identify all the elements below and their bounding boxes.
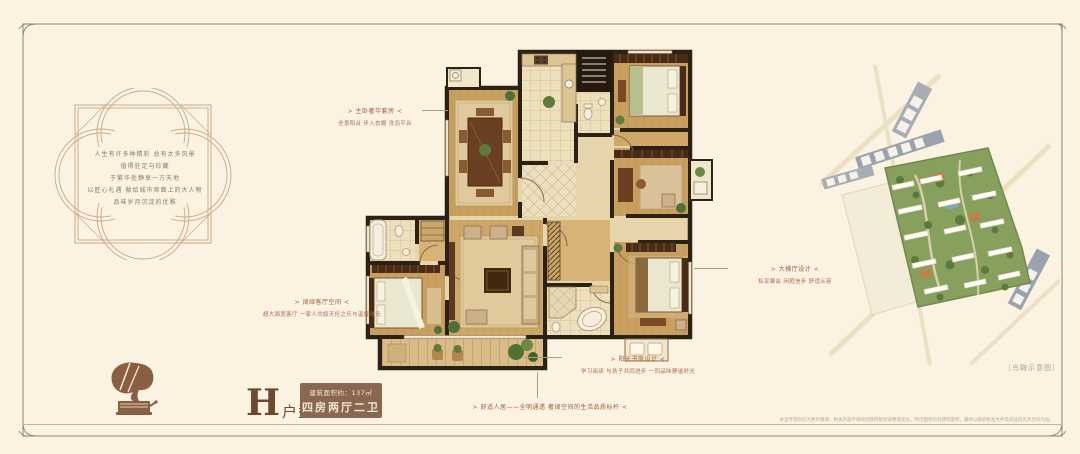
leader-line-vertical xyxy=(537,372,538,398)
callout-master-suite: ≻ 主卧奢华套房 ≺ 全景阳台 步入衣帽 洗浴平台 xyxy=(328,106,422,127)
callout-study: ≻ 阳光书房设计 ≺ 学习阅读 与孩子共同进步 一同品味静谧时光 xyxy=(563,354,713,375)
callout-banner: ≻ 舒适人居——全明通透 奢阔空间的生活品质标杆 ≺ xyxy=(410,402,690,411)
intro-line: 人生有许多种精彩 总有太多风景 xyxy=(55,149,235,161)
intro-copy: 人生有许多种精彩 总有太多风景 值得驻足与珍藏 于繁华处静享一方天地 以匠心礼遇… xyxy=(55,149,235,209)
leader-line xyxy=(422,110,448,111)
unit-letter: H xyxy=(246,383,280,423)
stair-core xyxy=(576,50,612,92)
callout-desc: 学习阅读 与孩子共同进步 一同品味静谧时光 xyxy=(563,367,713,375)
callout-title: ≻ 舒适人居——全明通透 奢阔空间的生活品质标杆 ≺ xyxy=(410,402,690,411)
gramophone-icon xyxy=(106,360,158,418)
dining-room xyxy=(455,91,515,206)
callout-desc: 超大面宽客厅 一家人共叙天伦之乐与温馨时光 xyxy=(262,310,382,318)
callout-living: ≻ 阔绰客厅空间 ≺ 超大面宽客厅 一家人共叙天伦之乐与温馨时光 xyxy=(262,297,382,318)
site-plan-caption: 〔鸟瞰示意图〕 xyxy=(952,363,1060,373)
footer-rule xyxy=(23,424,1062,425)
intro-line: 以匠心礼遇 献给城市席面上的大人物 xyxy=(55,185,235,197)
unit-badge: 建筑面积约：137㎡ 四房两厅二卫 xyxy=(300,383,382,418)
intro-line: 品味岁月沉淀的优雅 xyxy=(55,197,235,209)
site-plan xyxy=(820,65,1060,365)
leader-line xyxy=(524,357,562,358)
disclaimer-text: 本宣传资料仅为要约邀请，相关内容不排除因政府规划调整而变化，所示面积均为建筑面积… xyxy=(594,417,1054,423)
callout-title: ≻ 主卧奢华套房 ≺ xyxy=(328,106,422,115)
unit-area: 建筑面积约：137㎡ xyxy=(310,387,373,397)
unit-layout: 四房两厅二卫 xyxy=(302,399,380,415)
leader-line xyxy=(694,268,728,269)
corridor-closet xyxy=(548,222,560,280)
callout-title: ≻ 阳光书房设计 ≺ xyxy=(563,354,713,363)
brochure-page: 人生有许多种精彩 总有太多风景 值得驻足与珍藏 于繁华处静享一方天地 以匠心礼遇… xyxy=(0,0,1080,454)
callout-title: ≻ 阔绰客厅空间 ≺ xyxy=(262,297,382,306)
floor-plan xyxy=(345,45,725,385)
intro-line: 值得驻足与珍藏 xyxy=(55,161,235,173)
callout-desc: 全景阳台 步入衣帽 洗浴平台 xyxy=(328,119,422,127)
living-room xyxy=(448,226,539,333)
intro-line: 于繁华处静享一方天地 xyxy=(55,173,235,185)
